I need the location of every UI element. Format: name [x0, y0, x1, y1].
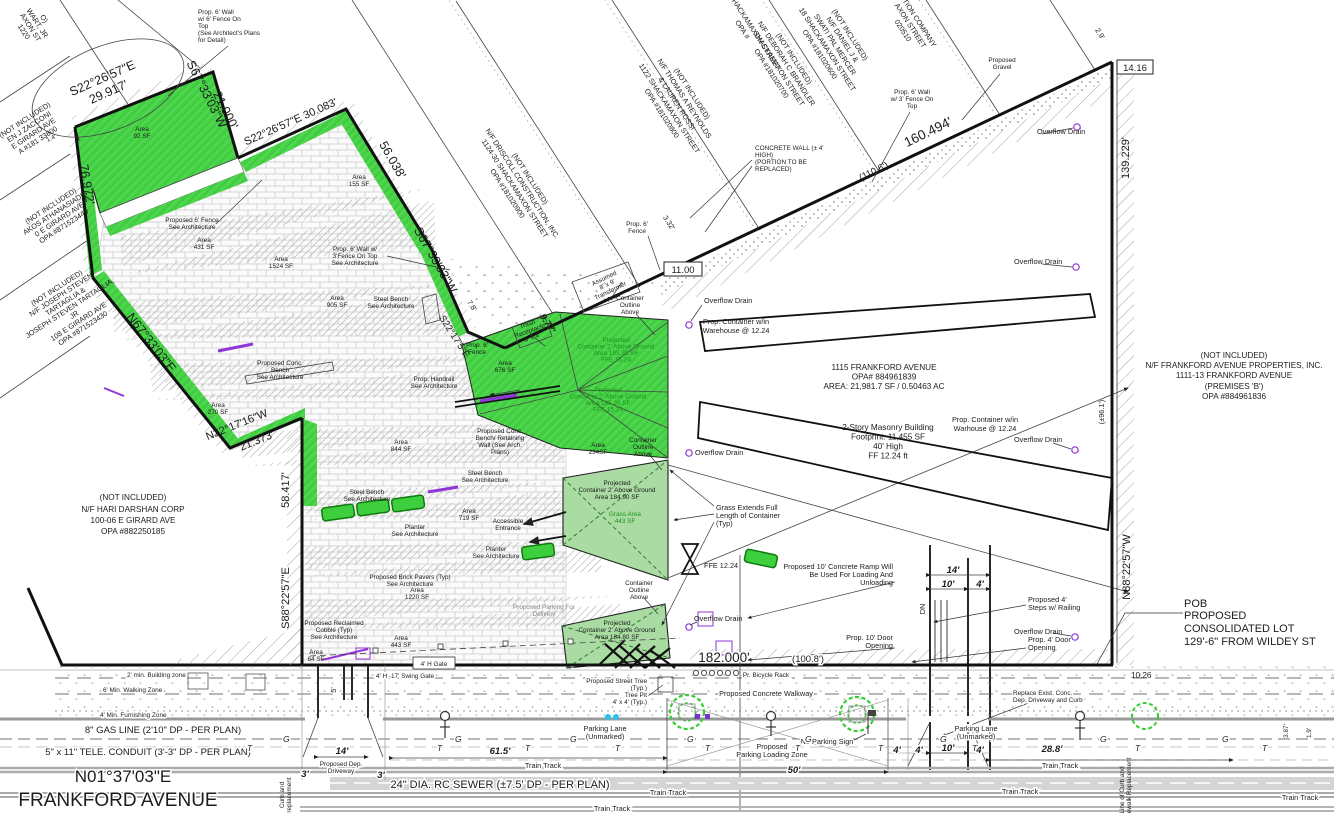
label-gas-line: 8" GAS LINE (2'10" DP - PER PLAN)	[85, 725, 241, 736]
svg-text:POB: POB	[1184, 598, 1207, 610]
svg-text:Opening: Opening	[865, 641, 893, 650]
svg-text:T: T	[525, 743, 531, 753]
label-gravel: ProposedGravel	[988, 57, 1016, 71]
dim-50-label: 50'	[788, 765, 802, 776]
label-concrete-walkway: Proposed Concrete Walkway	[719, 689, 813, 698]
svg-text:OPA #882250185: OPA #882250185	[101, 527, 165, 536]
label-steel-bench-1: Steel BenchSee Architecture	[368, 296, 415, 310]
svg-text:1220 SF: 1220 SF	[405, 594, 429, 601]
svg-text:Bench/ Retaining: Bench/ Retaining	[476, 435, 525, 442]
svg-text:T: T	[247, 743, 253, 753]
svg-text:676 SF: 676 SF	[495, 367, 516, 374]
svg-text:Proposed Conc.: Proposed Conc.	[257, 360, 303, 367]
parcel-frag-1: O)WART, JRAXON ST1220	[11, 2, 57, 48]
label-train-4: Train Track	[1002, 787, 1039, 796]
svg-text:Warhouse @ 12.24: Warhouse @ 12.24	[954, 424, 1017, 433]
svg-text:See Architecture: See Architecture	[257, 374, 304, 381]
svg-text:Container 2' Above Ground: Container 2' Above Ground	[579, 487, 656, 494]
label-train-3: Train Track	[650, 788, 687, 797]
label-wall3top: Prop. 6' Wallw/ 3' Fence OnTop	[890, 89, 934, 110]
svg-text:Unloading: Unloading	[860, 578, 893, 587]
svg-text:Top: Top	[907, 103, 918, 110]
svg-text:Area: Area	[330, 295, 344, 302]
svg-text:T: T	[615, 743, 621, 753]
label-warehouse-container-2: Prop. Container w/inWarhouse @ 12.24	[952, 415, 1018, 433]
dim-28-8-label: 28.8'	[1041, 744, 1063, 755]
svg-text:Line of Curb and: Line of Curb and	[1119, 766, 1126, 813]
svg-text:T: T	[878, 743, 884, 753]
svg-text:See Architecture: See Architecture	[392, 531, 439, 538]
label-steel-bench-3: Steel BenchSee Architecture	[344, 489, 391, 503]
svg-text:Steps w/ Railing: Steps w/ Railing	[1028, 603, 1080, 612]
svg-text:129'-6" FROM WILDEY ST: 129'-6" FROM WILDEY ST	[1184, 636, 1316, 648]
svg-text:Projected: Projected	[604, 620, 631, 627]
svg-text:844 SF: 844 SF	[391, 446, 412, 453]
label-area-92: Area92 SF	[133, 126, 150, 140]
svg-text:(Typ.): (Typ.)	[631, 685, 647, 692]
dim-61-5-label: 61.5'	[490, 746, 511, 757]
svg-text:905 SF: 905 SF	[327, 302, 348, 309]
svg-text:HIGH): HIGH)	[755, 152, 773, 159]
svg-text:Area: Area	[498, 360, 512, 367]
svg-text:(See Architect's Plans: (See Architect's Plans	[198, 30, 260, 37]
svg-text:Area: Area	[274, 256, 288, 263]
label-fence6s-b: Prop. 6'Fence	[626, 221, 648, 235]
svg-text:Fence: Fence	[628, 228, 646, 235]
svg-text:Gravel: Gravel	[993, 64, 1012, 71]
svg-text:Prop. 6' Wall w/: Prop. 6' Wall w/	[333, 246, 377, 253]
svg-text:Replace Exist. Conc.: Replace Exist. Conc.	[1013, 690, 1073, 697]
svg-text:270 SF: 270 SF	[208, 409, 229, 416]
svg-text:Above: Above	[621, 309, 640, 316]
drain-icon	[1072, 447, 1078, 453]
dim-96-1: (±96.1')	[1097, 400, 1106, 424]
label-accessible-entrance: AccessibleEntrance	[493, 518, 524, 532]
svg-text:G: G	[1222, 734, 1229, 744]
label-swing-gate: 4' H -17' Swing Gate	[376, 673, 435, 680]
svg-text:OPA #884961836: OPA #884961836	[1202, 392, 1266, 401]
label-dn: DN	[918, 604, 927, 615]
svg-text:See Architecture: See Architecture	[311, 634, 358, 641]
svg-text:See Architecture: See Architecture	[332, 260, 379, 267]
svg-text:Planter: Planter	[405, 524, 426, 531]
svg-text:Container: Container	[629, 437, 658, 444]
dim-3-87: 3.87'	[1283, 724, 1290, 738]
dim-10-26: 10.26	[1131, 671, 1152, 680]
svg-text:T: T	[1135, 743, 1141, 753]
dim-3-32: 3.32'	[661, 214, 677, 232]
svg-text:Proposed 6' Fence: Proposed 6' Fence	[165, 217, 219, 224]
svg-text:See Architecture: See Architecture	[344, 496, 391, 503]
svg-text:Area: Area	[135, 126, 149, 133]
svg-text:G: G	[1100, 734, 1107, 744]
svg-text:(Typ): (Typ)	[716, 519, 733, 528]
label-parking-lane-2: Parking Lane(Unmarked)	[954, 724, 997, 741]
svg-text:Steel Bench: Steel Bench	[374, 296, 409, 303]
svg-text:See Architecture: See Architecture	[411, 383, 458, 390]
svg-text:FF 12.24 ft: FF 12.24 ft	[868, 452, 908, 461]
svg-text:Area: Area	[211, 402, 225, 409]
dim-4a: 4'	[892, 745, 901, 756]
svg-text:Above: Above	[630, 594, 649, 601]
svg-text:Driveway: Driveway	[328, 768, 355, 775]
svg-text:64 SF: 64 SF	[307, 656, 324, 663]
label-handrail: Prop. HandrailSee Architecture	[411, 376, 458, 390]
svg-text:Grass Area: Grass Area	[609, 511, 641, 518]
svg-text:Container: Container	[625, 580, 654, 587]
label-overflow-4: Overflow Drain	[695, 448, 743, 457]
label-tele-conduit: 5" x 11" TELE. CONDUIT (3'-3" DP - PER P…	[45, 747, 251, 758]
svg-text:Outline: Outline	[633, 444, 654, 451]
svg-text:G: G	[283, 734, 290, 744]
svg-text:Bench: Bench	[271, 367, 290, 374]
label-train-2: Train Track	[1042, 761, 1079, 770]
svg-text:Steel Bench: Steel Bench	[350, 489, 385, 496]
svg-text:REPLACED): REPLACED)	[755, 166, 792, 173]
label-curb-replacement-right: Line of Curb andSidewalk Replacement	[1119, 757, 1133, 813]
label-zone-building: 2' min. Building zone	[127, 672, 186, 679]
label-bike-rack: Pr. Bicycle Rack	[743, 672, 790, 679]
svg-text:431 SF: 431 SF	[194, 244, 215, 251]
label-overflow-5: Overflow Drain	[1014, 435, 1062, 444]
label-train-6: Train Track	[1282, 793, 1319, 802]
label-sewer: 24" DIA. RC SEWER (±7.5' DP - PER PLAN)	[390, 779, 609, 791]
svg-text:Area: Area	[309, 649, 323, 656]
svg-text:Top: Top	[198, 23, 209, 30]
svg-text:Container: Container	[616, 295, 645, 302]
svg-text:Area: Area	[352, 174, 366, 181]
svg-text:See Architecture: See Architecture	[462, 477, 509, 484]
svg-text:Prop. Container w/in: Prop. Container w/in	[952, 415, 1018, 424]
label-zone-furnishing: 4' Min. Furnishing Zone	[100, 712, 167, 719]
label-steel-bench-2: Steel BenchSee Architecture	[462, 470, 509, 484]
svg-text:(NOT INCLUDED): (NOT INCLUDED)	[100, 493, 167, 502]
dim-182-000: 182.000'	[698, 650, 749, 665]
svg-text:FFE 15.24: FFE 15.24	[593, 407, 623, 414]
label-parking-lane-1: Parking Lane(Unmarked)	[583, 724, 626, 741]
svg-text:2-Story Masonry Building: 2-Story Masonry Building	[842, 423, 934, 432]
label-train-1: Train Track	[525, 761, 562, 770]
svg-text:Area: Area	[394, 635, 408, 642]
svg-text:Proposed Dep.: Proposed Dep.	[320, 761, 363, 768]
parcel-hari-darshan: (NOT INCLUDED)N/F HARI DARSHAN CORP100-0…	[81, 493, 185, 536]
svg-text:(NOT INCLUDED): (NOT INCLUDED)	[1201, 351, 1268, 360]
svg-text:G: G	[805, 734, 812, 744]
dim-160-494: 160.494'	[902, 114, 955, 150]
svg-text:Proposed: Proposed	[988, 57, 1016, 64]
dim-2-9: 2.9'	[1093, 26, 1107, 41]
dim-drive-3l: 3'	[301, 769, 309, 780]
svg-text:Prop. 6': Prop. 6'	[626, 221, 648, 228]
pob-block: POBPROPOSEDCONSOLIDATED LOT129'-6" FROM …	[1184, 598, 1316, 648]
svg-text:Prop. 6' Wall: Prop. 6' Wall	[198, 9, 234, 16]
elev-11-00: 11.00	[671, 265, 694, 276]
dim-drive-3r: 3'	[377, 770, 385, 781]
svg-text:4' x 4' (Typ.): 4' x 4' (Typ.)	[613, 699, 647, 706]
svg-text:See Architecture: See Architecture	[473, 553, 520, 560]
svg-text:G: G	[455, 734, 462, 744]
svg-text:w/ 3' Fence On: w/ 3' Fence On	[890, 96, 934, 103]
svg-text:Prop. 6': Prop. 6'	[466, 342, 488, 349]
svg-text:Area 184.90 SF: Area 184.90 SF	[595, 494, 640, 501]
label-zone-walking: 6' Min. Walking Zone	[103, 687, 163, 694]
svg-text:Sidewalk Replacement: Sidewalk Replacement	[1126, 757, 1133, 813]
dim-4b: 4'	[914, 745, 923, 756]
site-plan-page: S22°26'57"E29.917' S67°33'03"W 21.000' S…	[0, 0, 1334, 813]
svg-text:G: G	[940, 734, 947, 744]
svg-text:92 SF: 92 SF	[133, 133, 150, 140]
svg-text:Accessible: Accessible	[493, 518, 524, 525]
drain-icon	[1072, 634, 1078, 640]
svg-text:1524 SF: 1524 SF	[269, 263, 293, 270]
svg-text:Prop. Container w/in: Prop. Container w/in	[703, 317, 769, 326]
dim-58-417: 58.417'	[280, 472, 292, 508]
label-fence6s-a: Prop. 6'Fence	[466, 342, 488, 356]
svg-text:Area 184.80 SF: Area 184.80 SF	[595, 634, 640, 641]
svg-text:CONSOLIDATED LOT: CONSOLIDATED LOT	[1184, 623, 1295, 635]
svg-text:Proposed Brick Pavers (Typ): Proposed Brick Pavers (Typ)	[369, 574, 450, 581]
label-fence6: Proposed 6' FenceSee Architecture	[165, 217, 219, 231]
svg-text:T: T	[705, 743, 711, 753]
label-overflow-1: Overflow Drain	[1037, 127, 1085, 136]
site-info-block: 1115 FRANKFORD AVENUEOPA# 884961839AREA:…	[823, 363, 944, 391]
svg-text:1111-13 FRANKFORD AVENUE: 1111-13 FRANKFORD AVENUE	[1176, 371, 1293, 380]
svg-text:for Detail): for Detail)	[198, 37, 226, 44]
label-container-outline-1: ContainerOutlineAbove	[616, 295, 645, 316]
parcel-reynolds: (NOT INCLUDED)N/F THOMAS A REYNOLDS& LAU…	[629, 47, 724, 160]
svg-text:FFE 15.24: FFE 15.24	[601, 357, 631, 364]
label-gate4: 4' H Gate	[421, 661, 448, 668]
svg-text:Opening: Opening	[1028, 643, 1056, 652]
label-overflow-2: Overflow Drain	[1014, 257, 1062, 266]
svg-text:N/F HARI DARSHAN CORP: N/F HARI DARSHAN CORP	[81, 505, 185, 514]
elev-14-16: 14.16	[1123, 63, 1147, 74]
svg-text:Curb and: Curb and	[279, 781, 286, 808]
svg-text:3'Fence On Top: 3'Fence On Top	[333, 253, 378, 260]
svg-text:Proposed Parking For: Proposed Parking For	[513, 604, 576, 611]
svg-text:T: T	[795, 743, 801, 753]
svg-text:100-06 E GIRARD AVE: 100-06 E GIRARD AVE	[91, 516, 176, 525]
label-container-outline-3: ContainerOutlineAbove	[625, 580, 654, 601]
dim-ramp-14: 14'	[947, 565, 961, 576]
svg-text:Warehouse @ 12.24: Warehouse @ 12.24	[703, 326, 770, 335]
svg-text:Entrance: Entrance	[495, 525, 521, 532]
svg-text:443 SF: 443 SF	[391, 642, 412, 649]
svg-text:Dep. Driveway and Curb: Dep. Driveway and Curb	[1013, 697, 1083, 704]
svg-text:155 SF: 155 SF	[349, 181, 370, 188]
svg-text:OPA# 884961839: OPA# 884961839	[852, 373, 917, 382]
drain-icon	[1073, 264, 1079, 270]
svg-text:N/F FRANKFORD AVENUE PROPERTIE: N/F FRANKFORD AVENUE PROPERTIES, INC.	[1145, 361, 1322, 370]
svg-text:Footprint: 11,455 SF: Footprint: 11,455 SF	[851, 433, 925, 442]
svg-text:G: G	[570, 734, 577, 744]
label-curb-replacement-left: Curb andreplacement	[279, 777, 293, 812]
svg-text:Fence: Fence	[468, 349, 486, 356]
svg-text:234SF: 234SF	[589, 449, 608, 456]
svg-text:1115 FRANKFORD AVENUE: 1115 FRANKFORD AVENUE	[831, 363, 937, 372]
label-wall6: Prop. 6' Wallw/ 6' Fence OnTop(See Archi…	[197, 9, 260, 44]
label-area-234: Area234SF	[589, 442, 608, 456]
svg-text:Area: Area	[394, 439, 408, 446]
label-overflow-6: Overflow Drain	[694, 614, 742, 623]
svg-text:Proposed Street Tree: Proposed Street Tree	[586, 678, 647, 685]
label-door10: Prop. 10' DoorOpening	[846, 633, 893, 650]
svg-text:(Unmarked): (Unmarked)	[586, 732, 625, 741]
label-grass-extends: Grass Extends FullLength of Container(Ty…	[716, 503, 781, 528]
label-concrete-wall: CONCRETE WALL (± 4'HIGH)(PORTION TO BERE…	[755, 145, 824, 173]
label-wall3: Prop. 6' Wall w/3'Fence On TopSee Archit…	[332, 246, 379, 267]
svg-text:replacement: replacement	[286, 777, 293, 812]
svg-text:Area: Area	[462, 508, 476, 515]
dim-139-229: 139.229'	[1120, 137, 1132, 179]
svg-text:443 SF: 443 SF	[615, 518, 636, 525]
svg-text:Projected: Projected	[604, 480, 631, 487]
svg-text:Proposed Reclaimed: Proposed Reclaimed	[304, 620, 364, 627]
parcel-frag-construction: CTION COMPANYAXON STREET020510	[883, 0, 939, 59]
svg-text:w/ 6' Fence On: w/ 6' Fence On	[197, 16, 241, 23]
dim-1-9: 1.9'	[1306, 728, 1313, 738]
svg-text:Steel Bench: Steel Bench	[468, 470, 503, 477]
svg-text:Above: Above	[634, 451, 653, 458]
svg-text:Proposed Conc.: Proposed Conc.	[477, 428, 523, 435]
svg-text:Area: Area	[410, 587, 424, 594]
dim-100-8: (100.8')	[792, 654, 824, 665]
parcel-driscoll: (NOT INCLUDED)N/F DRISCOLL CONSTRUCTION,…	[468, 122, 569, 250]
svg-text:T: T	[437, 743, 443, 753]
svg-text:Area: Area	[197, 237, 211, 244]
svg-text:See Architecture: See Architecture	[368, 303, 415, 310]
svg-text:Plans): Plans)	[491, 449, 509, 456]
svg-text:Planter: Planter	[486, 546, 507, 553]
svg-text:CONCRETE WALL (± 4': CONCRETE WALL (± 4'	[755, 145, 824, 152]
svg-text:Outline: Outline	[629, 587, 650, 594]
label-train-5: Train Track	[594, 804, 631, 813]
label-steps: Proposed 4'Steps w/ Railing	[1028, 595, 1080, 612]
svg-text:PROPOSED: PROPOSED	[1184, 610, 1246, 622]
label-area-64: Area64 SF	[307, 649, 324, 663]
parcel-zacconi: (NOT INCLUDED)EN J ZACCONIE GIRARD AVEA …	[0, 100, 65, 160]
svg-text:(PREMISES 'B'): (PREMISES 'B')	[1205, 382, 1264, 391]
svg-text:Delivery: Delivery	[532, 611, 556, 618]
svg-text:See Architecture: See Architecture	[169, 224, 216, 231]
street-bearing: N01°37'03"E	[75, 767, 171, 786]
svg-text:Area: Area	[591, 442, 605, 449]
site-plan-canvas: S22°26'57"E29.917' S67°33'03"W 21.000' S…	[0, 0, 1334, 813]
drain-icon	[686, 322, 692, 328]
label-ffe: FFE 12.24	[704, 561, 738, 570]
bearing-s88-22-57: S88°22'57"E	[280, 567, 292, 629]
svg-text:Cobble (Typ): Cobble (Typ)	[316, 627, 353, 634]
label-ramp-note: Proposed 10' Concrete Ramp WillBe Used F…	[783, 562, 893, 587]
svg-text:Prop. Handrail: Prop. Handrail	[414, 376, 455, 383]
drain-icon	[686, 450, 692, 456]
svg-text:T: T	[972, 743, 978, 753]
svg-text:40' High: 40' High	[873, 442, 903, 451]
dim-5-label: 5'	[329, 687, 338, 693]
svg-text:Wall (See Arch.: Wall (See Arch.	[478, 442, 522, 449]
dim-drive-14: 14'	[336, 746, 350, 757]
street-name: FRANKFORD AVENUE	[18, 790, 217, 811]
parcel-frankford-properties: (NOT INCLUDED)N/F FRANKFORD AVENUE PROPE…	[1145, 351, 1322, 401]
svg-text:Tree Pit: Tree Pit	[625, 692, 647, 699]
dim-ramp-10: 10'	[942, 579, 956, 590]
svg-text:G: G	[687, 734, 694, 744]
svg-text:Outline: Outline	[620, 302, 641, 309]
dim-10-label: 10'	[942, 743, 956, 754]
svg-text:(Unmarked): (Unmarked)	[957, 732, 996, 741]
svg-text:719 SF: 719 SF	[459, 515, 480, 522]
svg-text:Prop. 6' Wall: Prop. 6' Wall	[894, 89, 930, 96]
svg-text:(PORTION TO BE: (PORTION TO BE	[755, 159, 807, 166]
label-warehouse-container-1: Prop. Container w/inWarehouse @ 12.24	[703, 317, 770, 335]
label-overflow-3: Overflow Drain	[704, 296, 752, 305]
bearing-n88-22-57: N88°22'57"W	[1121, 534, 1133, 600]
svg-text:Container 2' Above Ground: Container 2' Above Ground	[579, 627, 656, 634]
svg-text:T: T	[1262, 743, 1268, 753]
dim-ramp-4: 4'	[975, 579, 984, 590]
svg-text:AREA: 21,981.7 SF / 0.50463 AC: AREA: 21,981.7 SF / 0.50463 AC	[823, 382, 944, 391]
